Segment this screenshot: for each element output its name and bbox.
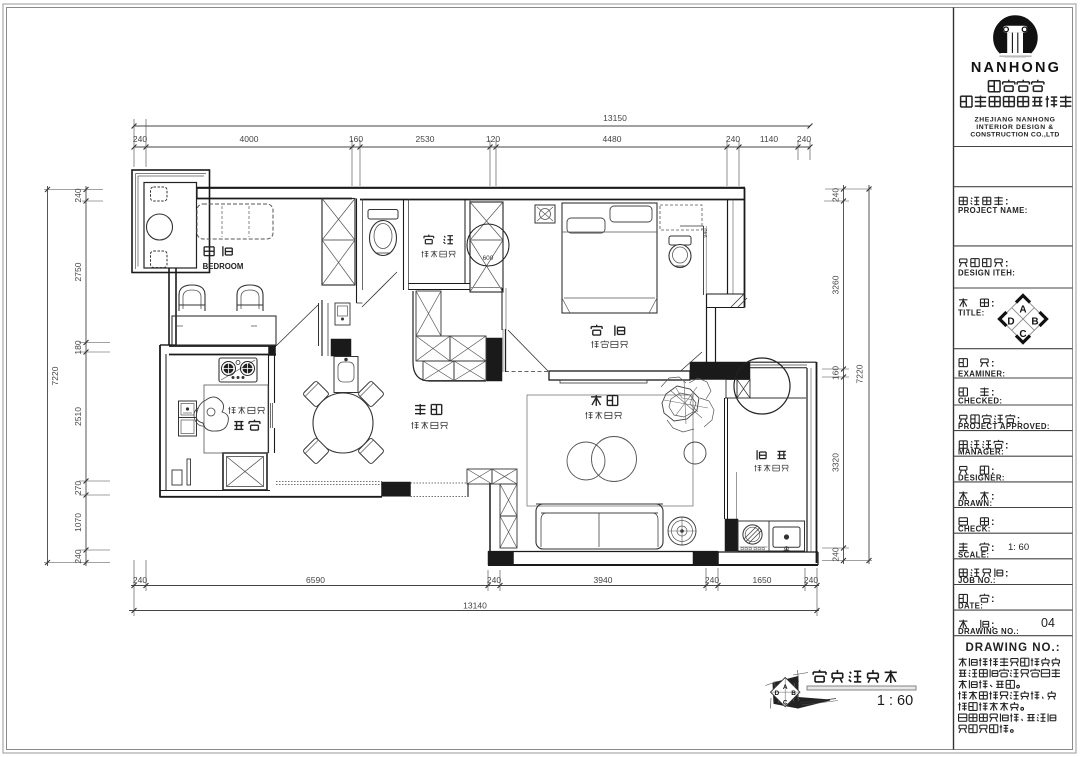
- svg-text:CHECKED:: CHECKED:: [958, 397, 1002, 406]
- svg-text::: :: [991, 593, 995, 605]
- svg-text:13150: 13150: [603, 113, 627, 123]
- svg-text:D: D: [774, 690, 779, 697]
- svg-text:240: 240: [831, 188, 841, 202]
- svg-text:240: 240: [487, 575, 501, 585]
- svg-text:CONSTRUCTION CO.,LTD: CONSTRUCTION CO.,LTD: [970, 132, 1059, 139]
- svg-text::: :: [1005, 439, 1009, 451]
- svg-text::: :: [991, 357, 995, 369]
- svg-text:DRAWING NO.:: DRAWING NO.:: [958, 627, 1019, 636]
- svg-text:B: B: [1031, 317, 1038, 328]
- svg-text:INTERIOR DESIGN &: INTERIOR DESIGN &: [976, 124, 1053, 131]
- svg-text:7220: 7220: [855, 364, 865, 383]
- svg-text:1: 60: 1: 60: [1008, 542, 1029, 553]
- svg-text:240: 240: [133, 575, 147, 585]
- svg-text:2510: 2510: [73, 407, 83, 426]
- svg-text:3940: 3940: [594, 575, 613, 585]
- svg-text:4480: 4480: [603, 134, 622, 144]
- svg-text:13140: 13140: [463, 601, 487, 611]
- svg-text:DESIGN ITEH:: DESIGN ITEH:: [958, 268, 1015, 277]
- svg-text:A: A: [1019, 305, 1026, 316]
- svg-text:NANHONG: NANHONG: [971, 60, 1061, 76]
- svg-text::: :: [1005, 568, 1009, 580]
- svg-text:D: D: [1007, 317, 1014, 328]
- svg-text:SCALE:: SCALE:: [958, 550, 989, 559]
- svg-text:600: 600: [483, 255, 494, 262]
- svg-text:1650: 1650: [753, 575, 772, 585]
- svg-text:7220: 7220: [50, 366, 60, 385]
- svg-text:240: 240: [705, 575, 719, 585]
- svg-text:160: 160: [831, 366, 841, 380]
- svg-text:DRAWN:: DRAWN:: [958, 499, 992, 508]
- svg-text:DRAWING NO.:: DRAWING NO.:: [965, 642, 1060, 654]
- svg-text:240: 240: [726, 134, 740, 144]
- svg-text:JOB NO.:: JOB NO.:: [958, 576, 996, 585]
- svg-text:120: 120: [486, 134, 500, 144]
- svg-text:160: 160: [349, 134, 363, 144]
- svg-text:940: 940: [703, 228, 709, 237]
- svg-text:C: C: [783, 700, 788, 707]
- svg-text:2750: 2750: [73, 262, 83, 281]
- svg-text:DESIGNER:: DESIGNER:: [958, 473, 1005, 482]
- svg-text:ZHEJIANG NANHONG: ZHEJIANG NANHONG: [975, 117, 1056, 124]
- svg-text:B: B: [791, 690, 796, 697]
- svg-text:PROJECT NAME:: PROJECT NAME:: [958, 206, 1028, 215]
- svg-text:4000: 4000: [240, 134, 259, 144]
- svg-text:04: 04: [1041, 616, 1055, 630]
- svg-text:1140: 1140: [760, 134, 779, 144]
- svg-text:CHECK:: CHECK:: [958, 525, 991, 534]
- svg-text:1 : 60: 1 : 60: [877, 693, 913, 709]
- svg-text:1070: 1070: [73, 513, 83, 532]
- svg-text:240: 240: [73, 188, 83, 202]
- svg-text:240: 240: [804, 575, 818, 585]
- svg-text:240: 240: [133, 134, 147, 144]
- svg-text:EXAMINER:: EXAMINER:: [958, 370, 1005, 379]
- svg-text:A: A: [783, 684, 788, 691]
- svg-text:3260: 3260: [831, 275, 841, 294]
- svg-text::: :: [991, 542, 995, 554]
- svg-text::: :: [991, 516, 995, 528]
- svg-text:DATE:: DATE:: [958, 602, 983, 611]
- svg-text:2530: 2530: [416, 134, 435, 144]
- svg-text:6590: 6590: [306, 575, 325, 585]
- svg-text:240: 240: [831, 547, 841, 561]
- svg-text:C: C: [1019, 329, 1026, 340]
- svg-text:240: 240: [797, 134, 811, 144]
- svg-text:PROJECT APPROVED:: PROJECT APPROVED:: [958, 422, 1050, 431]
- svg-text:240: 240: [73, 549, 83, 563]
- svg-text:TITLE:: TITLE:: [958, 309, 985, 318]
- svg-text::: :: [991, 298, 995, 310]
- svg-text:MANAGER:: MANAGER:: [958, 448, 1004, 457]
- svg-text:270: 270: [73, 481, 83, 495]
- svg-text:BEDROOM: BEDROOM: [203, 262, 244, 271]
- svg-text:3320: 3320: [831, 453, 841, 472]
